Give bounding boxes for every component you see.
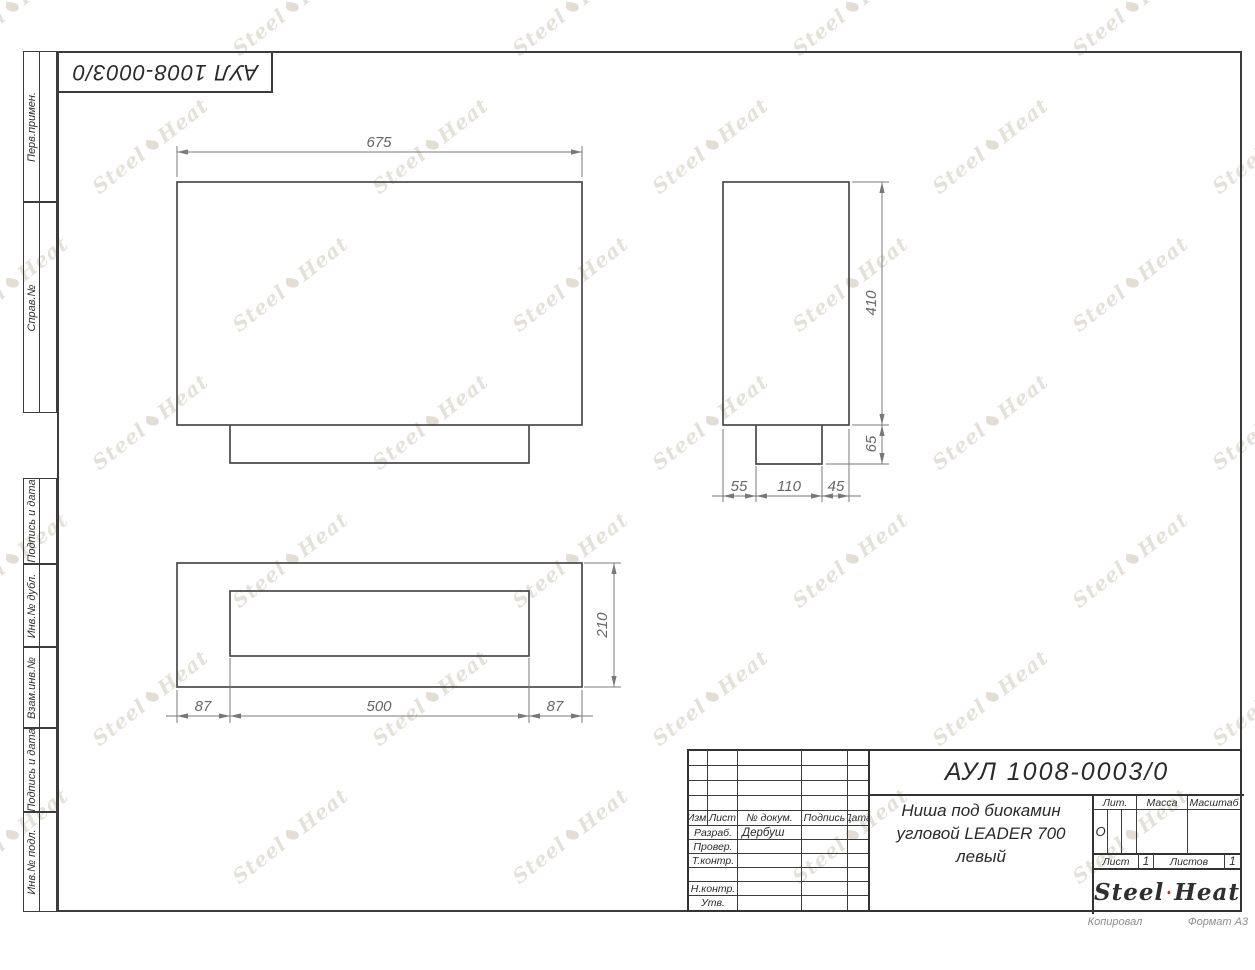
dim-text-55: 55 [731,478,748,495]
dim-text-87-left: 87 [195,698,212,715]
revision-cell [708,781,738,796]
empty-cell [1122,810,1137,855]
logo-text-heat: Heat [1174,879,1240,906]
sidebar-label: Подпись и дата [26,728,38,811]
sidebar-empty-cell [40,813,56,911]
revision-cell [708,796,738,811]
empty-cell [848,896,868,910]
list-label: Лист [1094,855,1139,870]
sidebar-label-cell: Инв.№ дубл. [24,565,40,646]
sidebar-label: Справ.№ [26,284,38,331]
revision-cell [708,751,738,766]
header-doc: № докум. [738,811,802,826]
front-view-pedestal [230,425,529,463]
empty-cell [848,868,868,882]
empty-cell [802,868,848,882]
sidebar-label-cell: Взам.инв.№ [24,648,40,727]
sidebar-section-sprav-no: Справ.№ [23,202,57,413]
massa-value [1137,810,1188,855]
header-list: Лист [708,811,738,826]
dimension-arrows [177,149,885,718]
bottom-view-opening [230,591,529,656]
dim-text-87-right: 87 [547,698,564,715]
dim-text-500: 500 [366,698,392,715]
masshtab-value [1188,810,1240,855]
sidebar-section-perv-primen: Перв.примен. [23,51,57,202]
part-name-line2: угловой LEADER 700 [897,822,1066,845]
sidebar-section-podpis-data-1: Подпись и дата [23,478,57,564]
dim-text-65: 65 [863,435,880,452]
massa-header: Масса [1137,796,1188,810]
revision-cell [738,766,802,781]
dim-text-210: 210 [594,612,611,639]
list-value: 1 [1139,855,1154,870]
empty-cell [848,882,868,896]
razrab-label: Разраб. [689,826,738,840]
empty-cell [848,826,868,840]
dim-text-410: 410 [863,290,880,316]
razrab-name: Дербуш [738,826,802,840]
empty-cell [802,840,848,854]
empty-cell [738,868,802,882]
sidebar-section-podpis-data-2: Подпись и дата [23,728,57,812]
sidebar-label-cell: Подпись и дата [24,479,40,563]
sidebar-section-inv-dubl: Инв.№ дубл. [23,564,57,647]
empty-cell [738,896,802,910]
company-logo: Steel Heat [1094,870,1240,914]
empty-cell [848,854,868,868]
empty-cell [738,854,802,868]
revision-cell [848,796,868,811]
revision-cell [802,781,848,796]
revision-cell [689,781,708,796]
title-block: Изм. Лист № докум. Подпись Дата Разраб. … [687,749,1242,912]
sidebar-label-cell: Справ.№ [24,203,40,412]
revision-cell [689,751,708,766]
copied-label: Копировал [1060,916,1170,928]
sidebar-label: Инв.№ дубл. [26,573,38,638]
utv-label: Утв. [689,896,738,910]
drawing-sheet: SteelHeatSteelHeatSteelHeatSteelHeatStee… [0,0,1255,970]
sidebar-label: Подпись и дата [26,479,38,562]
empty-cell [738,840,802,854]
lit-header: Лит. [1094,796,1137,810]
nkontr-label: Н.контр. [689,882,738,896]
tkontr-label: Т.контр. [689,854,738,868]
empty-cell [802,882,848,896]
sidebar-empty-cell [40,52,56,201]
header-sign: Подпись [802,811,848,826]
empty-cell [1108,810,1122,855]
header-date: Дата [848,811,868,826]
sidebar-empty-cell [40,479,56,563]
drawing-page: { "page": { "stamp_inverted": "АУЛ 1008-… [0,0,1255,970]
revision-cell [738,796,802,811]
revision-cell [708,766,738,781]
sidebar-label: Взам.инв.№ [26,657,38,719]
listov-label: Листов [1154,855,1225,870]
sidebar-label-cell: Подпись и дата [24,729,40,811]
empty-cell [802,896,848,910]
bottom-view-body [177,563,582,687]
dimension-lines [166,146,889,723]
sidebar-section-inv-podl: Инв.№ подл. [23,812,57,912]
empty-cell [689,868,738,882]
revision-cell [848,781,868,796]
part-name-line1: Ниша под биокамин [901,799,1060,822]
dim-text-110: 110 [777,478,802,495]
sidebar-label: Перв.примен. [26,91,38,161]
revision-cell [689,796,708,811]
revision-cell [848,751,868,766]
title-block-main: АУЛ 1008-0003/0 Ниша под биокамин углово… [870,751,1240,910]
part-name: Ниша под биокамин угловой LEADER 700 лев… [870,796,1094,870]
empty-cell [848,840,868,854]
flame-icon [1167,877,1171,907]
format-label: Формат А3 [1180,916,1255,928]
sidebar-label-cell: Перв.примен. [24,52,40,201]
revision-cell [802,751,848,766]
revision-cell [848,766,868,781]
sidebar-section-vzam-inv: Взам.инв.№ [23,647,57,728]
revision-cell [689,766,708,781]
dim-text-45: 45 [828,478,845,495]
designation: АУЛ 1008-0003/0 [870,751,1244,796]
revision-cell [738,781,802,796]
logo-text-steel: Steel [1094,879,1164,906]
empty-cell [738,882,802,896]
prover-label: Провер. [689,840,738,854]
part-name-line3: левый [956,845,1006,868]
view-outlines [177,182,849,687]
lit-value: О [1094,810,1108,855]
sidebar-empty-cell [40,729,56,811]
sidebar-empty-cell [40,565,56,646]
sidebar-label-cell: Инв.№ подл. [24,813,40,911]
empty-cell [802,826,848,840]
revision-cell [802,766,848,781]
revision-cell [738,751,802,766]
dim-text-675: 675 [366,134,392,151]
sidebar-empty-cell [40,203,56,412]
inverted-designation-stamp: АУЛ 1008-0003/0 [57,51,273,93]
masshtab-header: Масштаб [1188,796,1240,810]
listov-value: 1 [1225,855,1240,870]
empty-cell [802,854,848,868]
sidebar-empty-cell [40,648,56,727]
inverted-designation-text: АУЛ 1008-0003/0 [72,59,258,85]
title-block-signature-table: Изм. Лист № докум. Подпись Дата Разраб. … [689,751,870,910]
side-view-foot [756,425,822,464]
front-view-body [177,182,582,425]
empty-cell [870,870,1094,914]
side-view-body [723,182,849,425]
revision-cell [802,796,848,811]
sidebar-label: Инв.№ подл. [26,829,38,894]
header-izm: Изм. [689,811,708,826]
